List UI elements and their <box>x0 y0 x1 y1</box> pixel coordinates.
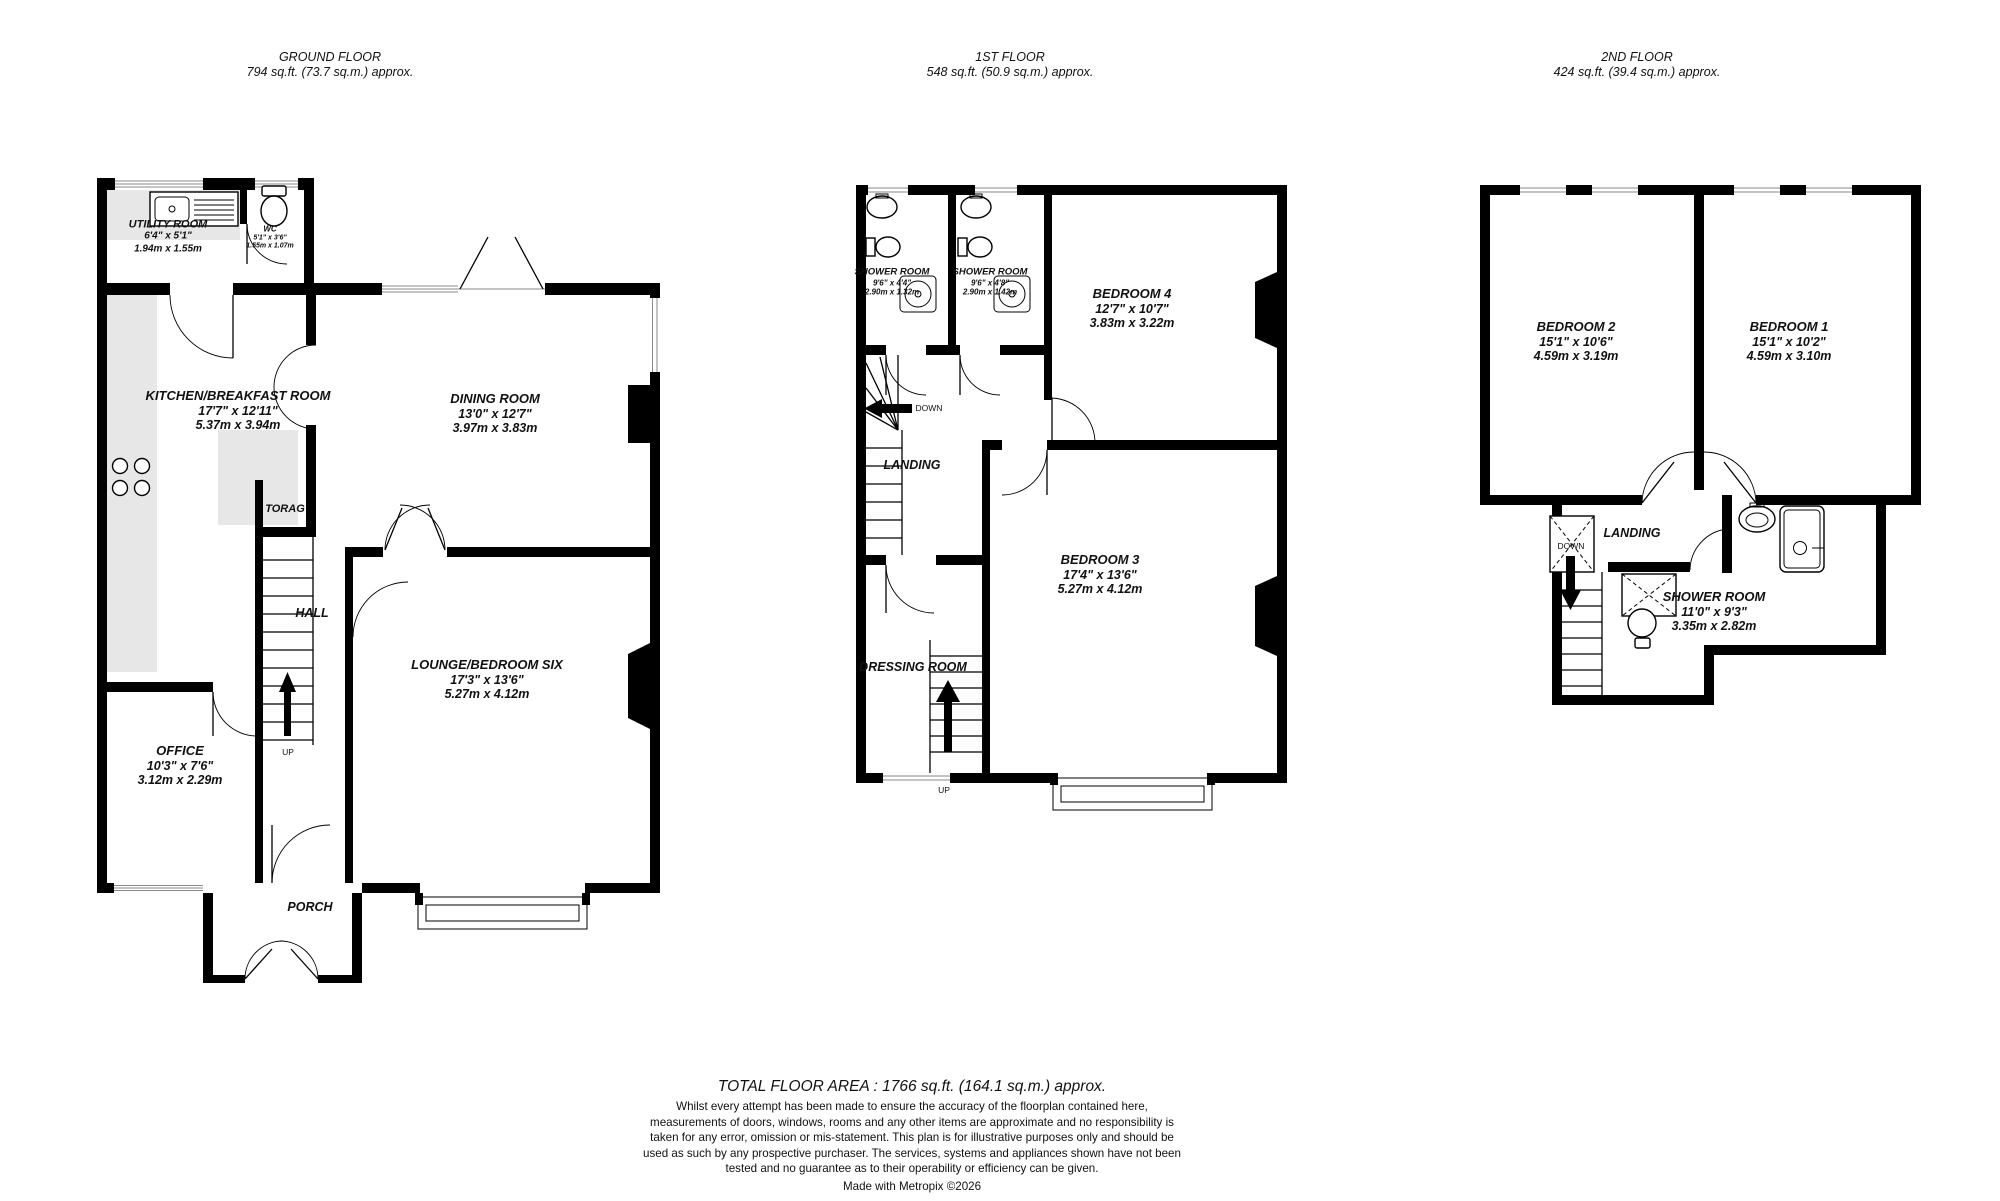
room-dim-ft: 12'7" x 10'7" <box>1090 301 1175 316</box>
room-name: BEDROOM 1 <box>1747 319 1832 335</box>
room-dim-ft: 10'3" x 7'6" <box>138 758 223 773</box>
room-dim-ft: 15'1" x 10'2" <box>1747 334 1832 349</box>
room-label-landing1: LANDING <box>884 458 941 473</box>
chimney-breast <box>1255 272 1277 348</box>
room-label-bedroom1: BEDROOM 1 15'1" x 10'2" 4.59m x 3.10m <box>1747 319 1832 364</box>
floor-title: 2ND FLOOR <box>1554 50 1721 65</box>
room-label-kitchen: KITCHEN/BREAKFAST ROOM 17'7" x 12'11" 5.… <box>146 388 331 433</box>
floor-area: 794 sq.ft. (73.7 sq.m.) approx. <box>247 65 414 80</box>
room-label-storage: TORAG <box>265 503 305 515</box>
room-dim-m: 5.37m x 3.94m <box>146 418 331 433</box>
room-name: TORAG <box>265 503 305 515</box>
room-dim-m: 3.83m x 3.22m <box>1090 316 1175 331</box>
toilet-icon <box>261 186 287 226</box>
room-dim-m: 4.59m x 3.19m <box>1534 349 1619 364</box>
room-label-bedroom3: BEDROOM 3 17'4" x 13'6" 5.27m x 4.12m <box>1058 552 1143 597</box>
chimney-breast <box>628 385 652 443</box>
staircase <box>263 537 313 745</box>
floor-title: 1ST FLOOR <box>927 50 1094 65</box>
room-name: LOUNGE/BEDROOM SIX <box>411 657 563 673</box>
room-dim-m: 3.35m x 2.82m <box>1663 619 1766 634</box>
room-name: SHOWER ROOM <box>953 267 1028 278</box>
first-floor-header: 1ST FLOOR 548 sq.ft. (50.9 sq.m.) approx… <box>927 50 1094 80</box>
toilet-icon <box>866 237 992 257</box>
floor-area: 548 sq.ft. (50.9 sq.m.) approx. <box>927 65 1094 80</box>
room-label-wc: WC 5'1" x 3'6" 1.55m x 1.07m <box>246 224 293 250</box>
disclaimer-text: Whilst every attempt has been made to en… <box>640 1099 1185 1177</box>
room-name: UTILITY ROOM <box>129 219 208 231</box>
room-label-office: OFFICE 10'3" x 7'6" 3.12m x 2.29m <box>138 743 223 788</box>
room-dim-ft: 6'4" x 5'1" <box>129 231 208 244</box>
room-dim-ft: 17'3" x 13'6" <box>411 672 563 687</box>
room-label-landing2: LANDING <box>1604 526 1661 541</box>
staircase <box>1560 556 1602 695</box>
floorplan-canvas: GROUND FLOOR 794 sq.ft. (73.7 sq.m.) app… <box>0 0 2000 1201</box>
room-dim-m: 3.12m x 2.29m <box>138 773 223 788</box>
room-dim-m: 1.94m x 1.55m <box>129 243 208 256</box>
room-dim-ft: 13'0" x 12'7" <box>450 406 540 421</box>
credit-text: Made with Metropix ©2026 <box>843 1180 981 1193</box>
room-label-shower1: SHOWER ROOM 9'6" x 4'4" 2.90m x 1.32m <box>855 267 930 297</box>
room-dim-m: 1.55m x 1.07m <box>246 242 293 250</box>
room-dim-ft: 5'1" x 3'6" <box>246 234 293 242</box>
room-dim-ft: 17'7" x 12'11" <box>146 403 331 418</box>
room-label-bedroom4: BEDROOM 4 12'7" x 10'7" 3.83m x 3.22m <box>1090 286 1175 331</box>
room-label-dressing: DRESSING ROOM <box>859 660 967 675</box>
room-name: OFFICE <box>138 743 223 759</box>
ground-floor-header: GROUND FLOOR 794 sq.ft. (73.7 sq.m.) app… <box>247 50 414 80</box>
bay-window <box>1050 773 1215 810</box>
room-dim-ft: 17'4" x 13'6" <box>1058 567 1143 582</box>
room-label-shower2: SHOWER ROOM 9'6" x 4'8" 2.90m x 1.42m <box>953 267 1028 297</box>
room-name: PORCH <box>287 900 332 915</box>
room-dim-m: 5.27m x 4.12m <box>411 687 563 702</box>
room-name: BEDROOM 2 <box>1534 319 1619 335</box>
room-label-dining: DINING ROOM 13'0" x 12'7" 3.97m x 3.83m <box>450 391 540 436</box>
chimney-breast <box>1255 576 1277 656</box>
room-label-lounge: LOUNGE/BEDROOM SIX 17'3" x 13'6" 5.27m x… <box>411 657 563 702</box>
room-name: DINING ROOM <box>450 391 540 407</box>
room-name: HALL <box>295 606 328 621</box>
room-dim-m: 3.97m x 3.83m <box>450 421 540 436</box>
ground-walls <box>97 178 660 983</box>
ground-floor-plan <box>90 170 690 1010</box>
second-floor-plan <box>1470 170 1940 730</box>
room-dim-ft: 9'6" x 4'4" <box>855 278 930 288</box>
floor-area: 424 sq.ft. (39.4 sq.m.) approx. <box>1554 65 1721 80</box>
room-name: KITCHEN/BREAKFAST ROOM <box>146 388 331 404</box>
bay-window <box>415 893 590 929</box>
room-label-shower-2f: SHOWER ROOM 11'0" x 9'3" 3.35m x 2.82m <box>1663 589 1766 634</box>
sink-icon <box>1739 503 1775 532</box>
french-doors <box>458 237 545 289</box>
stairs-down-label: DOWN <box>1558 541 1585 551</box>
room-name: DRESSING ROOM <box>859 660 967 675</box>
shower-icon <box>1780 506 1824 572</box>
hob-icon <box>107 452 157 500</box>
room-label-bedroom2: BEDROOM 2 15'1" x 10'6" 4.59m x 3.19m <box>1534 319 1619 364</box>
room-dim-m: 4.59m x 3.10m <box>1747 349 1832 364</box>
toilet-icon <box>1628 609 1656 648</box>
total-floor-area: TOTAL FLOOR AREA : 1766 sq.ft. (164.1 sq… <box>718 1078 1106 1096</box>
room-dim-m: 2.90m x 1.32m <box>855 287 930 297</box>
stairs-up-label: UP <box>282 747 294 757</box>
room-dim-m: 5.27m x 4.12m <box>1058 582 1143 597</box>
room-name: LANDING <box>884 458 941 473</box>
room-label-porch: PORCH <box>287 900 332 915</box>
room-label-utility: UTILITY ROOM 6'4" x 5'1" 1.94m x 1.55m <box>129 219 208 256</box>
room-dim-m: 2.90m x 1.42m <box>953 287 1028 297</box>
second-floor-header: 2ND FLOOR 424 sq.ft. (39.4 sq.m.) approx… <box>1554 50 1721 80</box>
room-name: WC <box>246 224 293 234</box>
room-name: BEDROOM 3 <box>1058 552 1143 568</box>
chimney-breast <box>628 642 652 730</box>
room-name: SHOWER ROOM <box>1663 589 1766 605</box>
sink-icon <box>867 194 991 218</box>
up-arrow-icon <box>936 680 960 752</box>
stairs-down-label: DOWN <box>916 403 943 413</box>
room-name: SHOWER ROOM <box>855 267 930 278</box>
room-dim-ft: 15'1" x 10'6" <box>1534 334 1619 349</box>
room-label-hall: HALL <box>295 606 328 621</box>
room-name: LANDING <box>1604 526 1661 541</box>
room-name: BEDROOM 4 <box>1090 286 1175 302</box>
stairs-up-label: UP <box>938 785 950 795</box>
room-dim-ft: 11'0" x 9'3" <box>1663 604 1766 619</box>
floor-title: GROUND FLOOR <box>247 50 414 65</box>
room-dim-ft: 9'6" x 4'8" <box>953 278 1028 288</box>
staircase <box>864 355 912 555</box>
